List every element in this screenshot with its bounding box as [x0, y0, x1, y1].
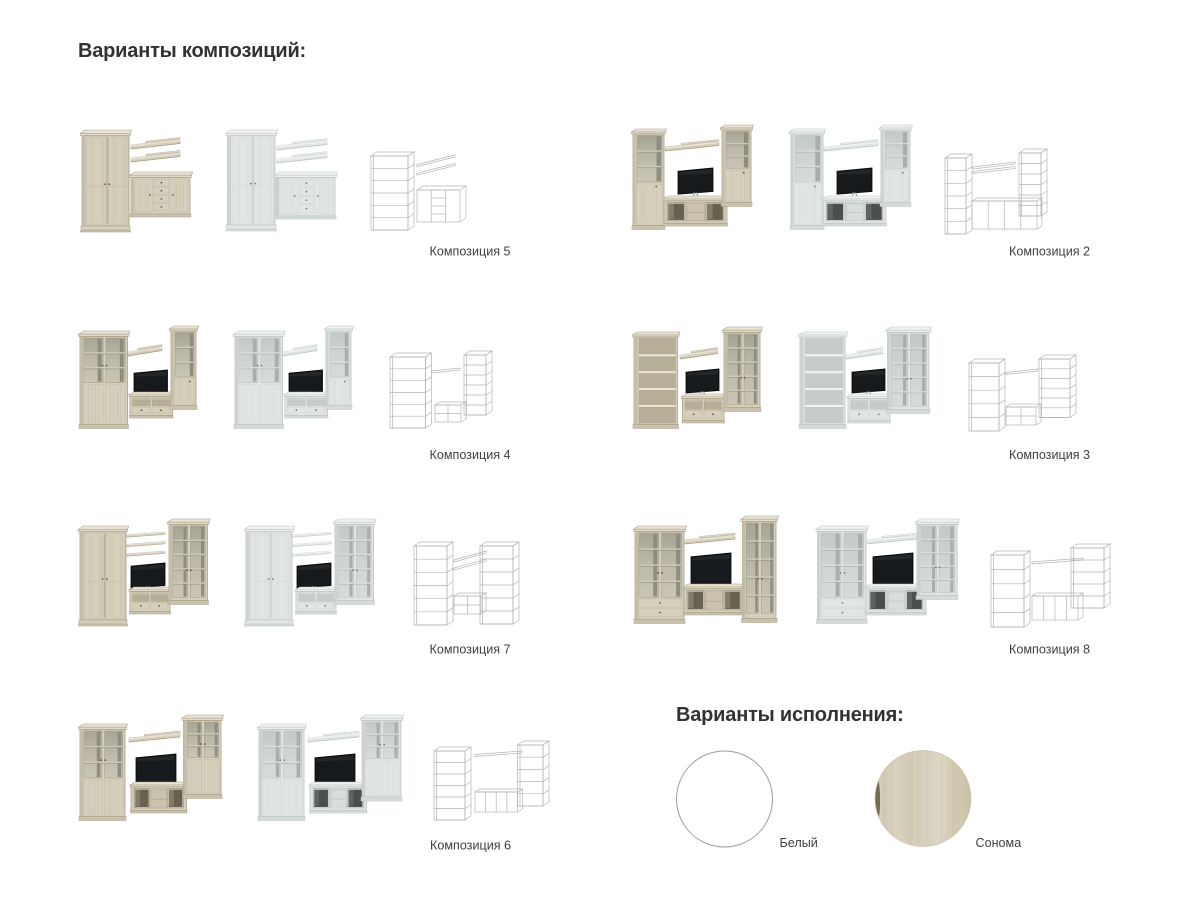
svg-text:Композиция 2: Композиция 2 — [1009, 245, 1090, 259]
svg-text:Композиция 6: Композиция 6 — [430, 839, 511, 853]
svg-text:Композиция 7: Композиция 7 — [430, 643, 511, 657]
svg-text:Композиция 8: Композиция 8 — [1009, 643, 1090, 657]
svg-text:Композиция 4: Композиция 4 — [430, 448, 511, 462]
svg-text:Варианты исполнения:: Варианты исполнения: — [676, 704, 904, 726]
svg-text:Композиция 5: Композиция 5 — [430, 245, 511, 259]
svg-text:Композиция 3: Композиция 3 — [1009, 448, 1090, 462]
svg-text:Сонома: Сонома — [976, 836, 1022, 850]
svg-text:Варианты композиций:: Варианты композиций: — [78, 40, 306, 62]
svg-text:Белый: Белый — [780, 836, 818, 850]
